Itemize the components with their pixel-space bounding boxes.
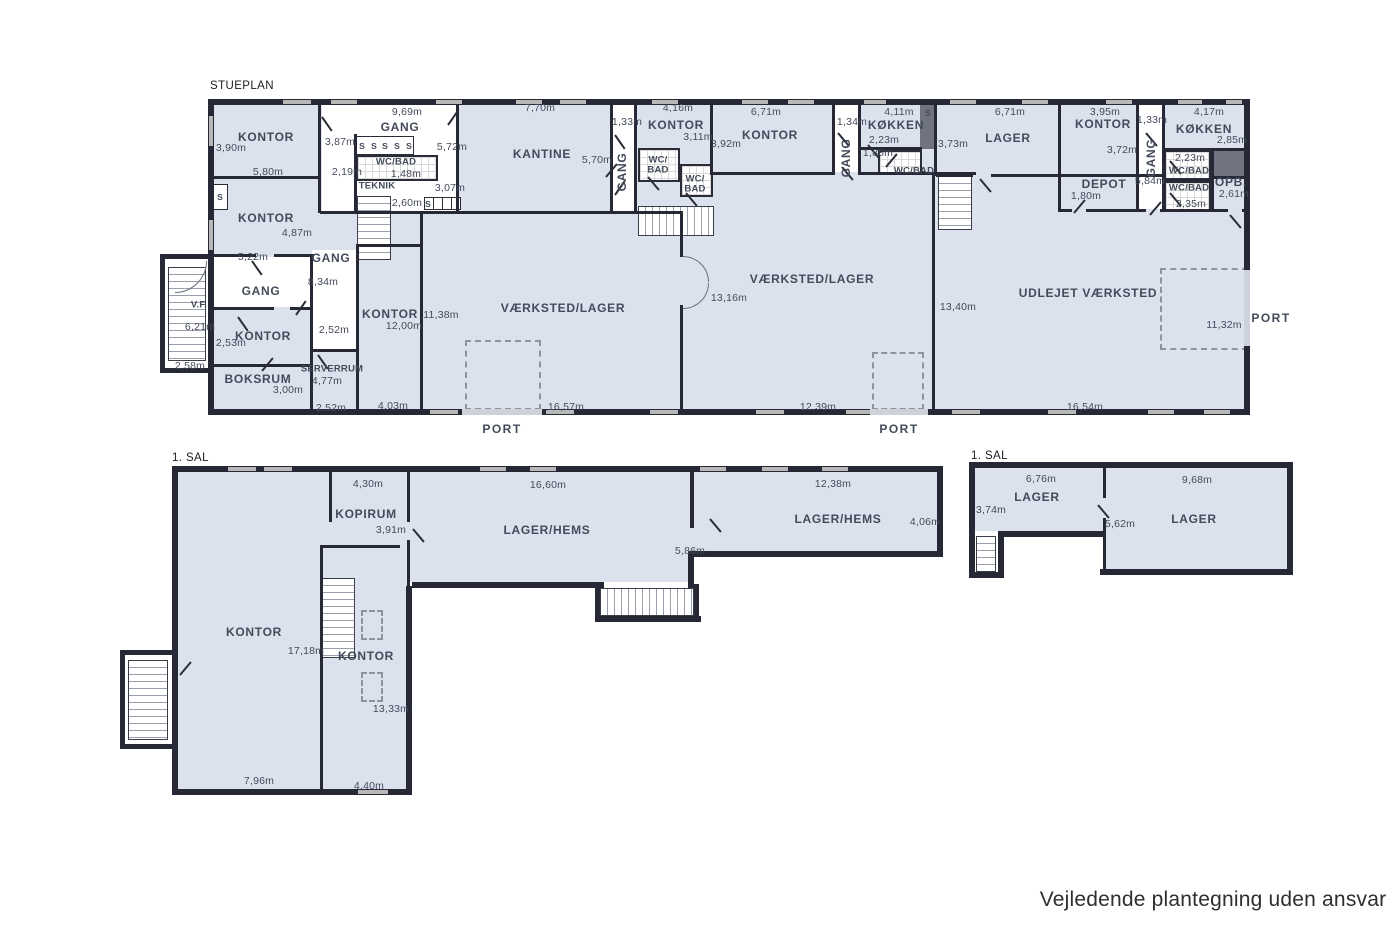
label-sp-kontor_nw-name: KONTOR (238, 130, 294, 144)
label-s1r-lager_b-w: 9,68m (1182, 474, 1212, 486)
label-s1l-hems2-w: 12,38m (815, 478, 851, 490)
label-s1l-kopirum-name: KOPIRUM (335, 507, 397, 521)
window (228, 467, 256, 471)
wall (320, 548, 323, 795)
label-sp-wcbad_r1-w: 2,23m (1175, 152, 1205, 164)
wall (688, 551, 943, 557)
label-s1l-hems2-h: 4,06m (910, 516, 940, 528)
wall (690, 470, 694, 528)
label-sp-wcbad_top-door: 2,19m (332, 166, 362, 178)
wall (969, 462, 975, 578)
label-sp-wcbad_a-name: WC/ BAD (647, 156, 668, 177)
label-sp-lager-h: 3,73m (938, 138, 968, 150)
port-dashed-outline (1160, 268, 1248, 350)
label-sp-koekken_r-h: 2,85m (1217, 134, 1247, 146)
label-sp-udlejet-name: UDLEJET VÆRKSTED (1019, 286, 1158, 300)
wall (1058, 209, 1072, 212)
label-sp-vf-w: 2,58m (175, 360, 205, 372)
label-sp-vl1-name: VÆRKSTED/LAGER (501, 301, 625, 315)
label-sp-kontor_3-h: 3,11m (683, 131, 712, 143)
window (950, 100, 976, 104)
closet-dark (1214, 150, 1246, 176)
window (264, 467, 292, 471)
wall (1100, 569, 1293, 575)
label-sp-s: S (371, 141, 377, 151)
window (209, 220, 213, 250)
wall (120, 650, 177, 655)
label-sp-vl2-h: 13,40m (940, 301, 976, 313)
port-opening (1244, 270, 1250, 346)
label-sp-gang_mid-name: GANG (312, 251, 351, 265)
label-sp-kontor_12-name: KONTOR (362, 307, 418, 321)
label-sp-kontor_sm-w: 2,52m (319, 324, 349, 336)
label-sp-gang_top-name: GANG (381, 120, 420, 134)
window (742, 100, 768, 104)
port-dashed-outline (361, 672, 383, 702)
label-sp-gang_mid-h: 8,34m (308, 276, 338, 288)
label-sp-kontor_12-h: 12,00m (386, 320, 422, 332)
label-sp-wcbad_top-name: WC/BAD (376, 157, 416, 168)
label-sp-kontor_4-w: 6,71m (751, 106, 781, 118)
label-sp-s: S (406, 141, 412, 151)
window (700, 467, 726, 471)
stairs (976, 536, 996, 572)
wall (212, 307, 274, 310)
wall (712, 172, 834, 175)
label-sp-teknik-w: 2,60m (392, 197, 422, 209)
label-s1l-hems1-name: LAGER/HEMS (503, 523, 590, 537)
label-sp-wcbad_b-name: WC/ BAD (684, 175, 705, 196)
label-s1l-kopirum-h: 3,91m (376, 524, 406, 536)
wall (212, 364, 312, 367)
label-sp-s: S (925, 108, 931, 118)
stairs (600, 588, 694, 616)
label-sp-label: STUEPLAN (210, 80, 274, 92)
wall (412, 582, 604, 588)
wall (832, 103, 835, 175)
window (788, 100, 814, 104)
label-sp-kontor_5-name: KONTOR (1075, 117, 1131, 131)
wall (160, 254, 212, 259)
label-sp-kontor_w2-name: KONTOR (238, 211, 294, 225)
label-sp-depot-w: 1,80m (1071, 190, 1101, 202)
label-sp-opb-name: OPB. (1215, 175, 1247, 189)
label-sp-kontor_nw-w: 5,80m (253, 166, 283, 178)
window (530, 467, 556, 471)
wall (1287, 462, 1293, 575)
window (864, 100, 886, 104)
window (1022, 100, 1048, 104)
label-sp-lager-w: 6,71m (995, 106, 1025, 118)
label-s1l-kontor_a-name: KONTOR (226, 625, 282, 639)
port-dashed-outline (361, 610, 383, 640)
wall (1244, 344, 1250, 415)
label-sp-gang_top-w: 9,69m (392, 106, 422, 118)
label-sp-koekken_m-name: KØKKEN (868, 118, 924, 132)
label-s1l-hems2-name: LAGER/HEMS (794, 512, 881, 526)
wall (936, 174, 973, 177)
stairs (321, 578, 355, 658)
label-sp-koekken_m-h: 2,23m (869, 134, 899, 146)
wall (932, 174, 935, 412)
label-sp-gang_v3-h: 5,84m (1135, 175, 1165, 187)
window (846, 410, 870, 414)
label-sp-vl1-w: 16,57m (548, 401, 584, 413)
label-sp-s: S (394, 141, 400, 151)
label-s1r-lager_a-w: 6,76m (1026, 473, 1056, 485)
wall (407, 540, 410, 588)
wall (356, 244, 422, 247)
label-s1l-hems1-step: 5,86m (675, 545, 705, 557)
window (1106, 100, 1132, 104)
wall (407, 470, 410, 522)
label-s1l-label: 1. SAL (172, 452, 209, 464)
label-sp-serverrum-name: SERVERRUM (301, 364, 363, 375)
label-sp-boksrum-h: 3,00m (273, 384, 303, 396)
window (1178, 100, 1202, 104)
label-sp-vf-name: V.F. (191, 300, 207, 311)
window (331, 100, 357, 104)
window (952, 410, 980, 414)
window (430, 410, 458, 414)
label-sp-kontor_5-h: 3,72m (1107, 144, 1137, 156)
label-sp-wcbad_top-w: 1,48m (391, 168, 421, 180)
label-sp-gang_v2-name: GANG (839, 139, 853, 178)
window (822, 467, 848, 471)
label-sp-gang_v1-w: 1,33m (612, 116, 642, 128)
wall (274, 254, 314, 257)
wall (320, 211, 682, 214)
label-s1l-kontor_a-h: 17,18m (288, 645, 324, 657)
label-sp-port: PORT (482, 422, 521, 436)
label-sp-vf-h: 6,21m (185, 321, 215, 333)
label-sp-vl2-name: VÆRKSTED/LAGER (750, 272, 874, 286)
wall (998, 531, 1106, 537)
window (1148, 410, 1174, 414)
label-sp-port: PORT (879, 422, 918, 436)
window (762, 467, 788, 471)
wall (356, 246, 359, 412)
label-sp-serverrum-w: 2,52m (316, 402, 346, 414)
label-sp-vl1-h: 11,38m (423, 309, 458, 321)
wall (1103, 468, 1106, 498)
label-sp-kantine-w: 7,70m (525, 102, 555, 114)
label-sp-s: S (217, 192, 223, 202)
label-s1r-lager_b-name: LAGER (1171, 512, 1217, 526)
label-s1r-lager_b-h: 5,62m (1105, 518, 1135, 530)
wall (1242, 209, 1246, 212)
label-sp-lager-name: LAGER (985, 131, 1031, 145)
label-sp-gang_entry-name: GANG (242, 284, 281, 298)
label-sp-kontor_3-name: KONTOR (648, 118, 704, 132)
port-dashed-outline (872, 352, 924, 410)
label-s1l-kopirum-w: 4,30m (353, 478, 383, 490)
wall (998, 537, 1004, 578)
window (756, 410, 784, 414)
wall (1058, 103, 1061, 177)
label-sp-wcbad_r2-name: WC/BAD (1169, 183, 1209, 194)
label-sp-gang_v3-w: 1,33m (1137, 114, 1167, 126)
wall (680, 211, 683, 257)
label-sp-vl2-w: 12,39m (800, 401, 836, 413)
wall (160, 254, 165, 373)
label-footer-disclaimer: Vejledende plantegning uden ansvar (1040, 888, 1387, 912)
label-sp-udlejet-port_w: 11,32m (1206, 319, 1241, 331)
label-s1l-kontor_b-name: KONTOR (338, 649, 394, 663)
port-dashed-outline (465, 340, 541, 410)
label-sp-s: S (359, 141, 365, 151)
wall (680, 305, 683, 412)
label-sp-wcbad_r1-name: WC/BAD (1169, 166, 1209, 177)
label-sp-s: S (382, 141, 388, 151)
label-sp-depot-name: DEPOT (1082, 177, 1127, 191)
label-sp-vl2-door: 13,16m (711, 292, 747, 304)
wall (858, 103, 861, 175)
window (480, 467, 506, 471)
wall (310, 349, 356, 352)
label-sp-koekken_m-w: 4,11m (884, 106, 913, 118)
label-sp-wcbad_m-name: WC/BAD (894, 166, 934, 177)
label-sp-kontor_w2-h: 4,87m (282, 227, 312, 239)
label-sp-gang_top-door: 3,87m (325, 136, 355, 148)
wall (1162, 148, 1246, 151)
label-s1l-hems1-w: 16,60m (530, 479, 566, 491)
wall (120, 744, 177, 749)
label-s1r-lager_a-name: LAGER (1014, 490, 1060, 504)
port-opening (462, 409, 542, 415)
wall (969, 462, 1293, 468)
port-opening (870, 409, 928, 415)
label-sp-kontor_nw-h: 3,90m (216, 142, 246, 154)
wall (1211, 148, 1214, 212)
label-sp-kantine-name: KANTINE (513, 147, 571, 161)
label-s1r-label: 1. SAL (971, 450, 1008, 462)
label-s1l-kontor_a-w: 7,96m (244, 775, 274, 787)
label-sp-gang_v1-name: GANG (615, 153, 629, 192)
label-sp-kontor_w2-w: 5,22m (238, 251, 268, 263)
floor-plan: STUEPLANKONTOR3,90m5,80mGANG9,69m3,87mWC… (0, 0, 1400, 933)
window (1226, 100, 1242, 104)
label-s1l-kontor_b-w: 4,40m (354, 780, 384, 792)
wall (694, 584, 699, 622)
label-sp-kontor_3-w: 4,16m (663, 102, 693, 114)
label-s1l-kontor_b-h: 13,33m (373, 703, 409, 715)
label-sp-wcbad_r2-w: 2,35m (1176, 198, 1206, 210)
window (209, 116, 213, 146)
label-sp-kontor_sm-h: 2,53m (216, 337, 246, 349)
wall (934, 103, 937, 176)
wall (208, 99, 1250, 105)
label-s1r-lager_a-h: 3,74m (976, 504, 1006, 516)
wall (595, 616, 701, 622)
stairs (938, 176, 972, 230)
stairs (357, 196, 391, 260)
label-sp-kontor_4-name: KONTOR (742, 128, 798, 142)
wall (329, 470, 332, 522)
wall (456, 103, 459, 213)
label-sp-kontor_5-w: 3,95m (1090, 106, 1120, 118)
label-sp-wcbad_m-w: 1,88m (863, 147, 893, 159)
label-sp-gang_v2-w: 1,34m (837, 116, 867, 128)
wall (318, 103, 321, 213)
label-sp-kitchenette-w: 5,72m (437, 141, 467, 153)
wall (937, 466, 943, 557)
stairs (128, 660, 168, 740)
window (1204, 410, 1230, 414)
label-sp-kontor_12-w: 4,03m (378, 400, 408, 412)
window (283, 100, 311, 104)
wall (120, 650, 125, 749)
label-sp-port: PORT (1251, 311, 1290, 325)
label-sp-gang_v3-name: GANG (1144, 139, 1158, 178)
label-sp-teknik-name: TEKNIK (359, 181, 396, 192)
label-sp-serverrum-h: 4,77m (312, 375, 342, 387)
room-area (214, 257, 310, 307)
window (650, 410, 678, 414)
label-sp-kantine-h: 5,70m (582, 154, 612, 166)
wall (1058, 174, 1061, 212)
wall (320, 545, 400, 548)
label-sp-opb-h: 2,61m (1219, 188, 1249, 200)
label-sp-koekken_r-w: 4,17m (1194, 106, 1224, 118)
window (560, 100, 586, 104)
wall (406, 586, 412, 795)
label-sp-udlejet-w: 16,54m (1067, 401, 1103, 413)
window (436, 100, 462, 104)
label-sp-teknik-d2: 3,07m (435, 182, 465, 194)
label-sp-s: S (425, 199, 431, 209)
label-sp-kontor_4-h: 3,92m (711, 138, 741, 150)
